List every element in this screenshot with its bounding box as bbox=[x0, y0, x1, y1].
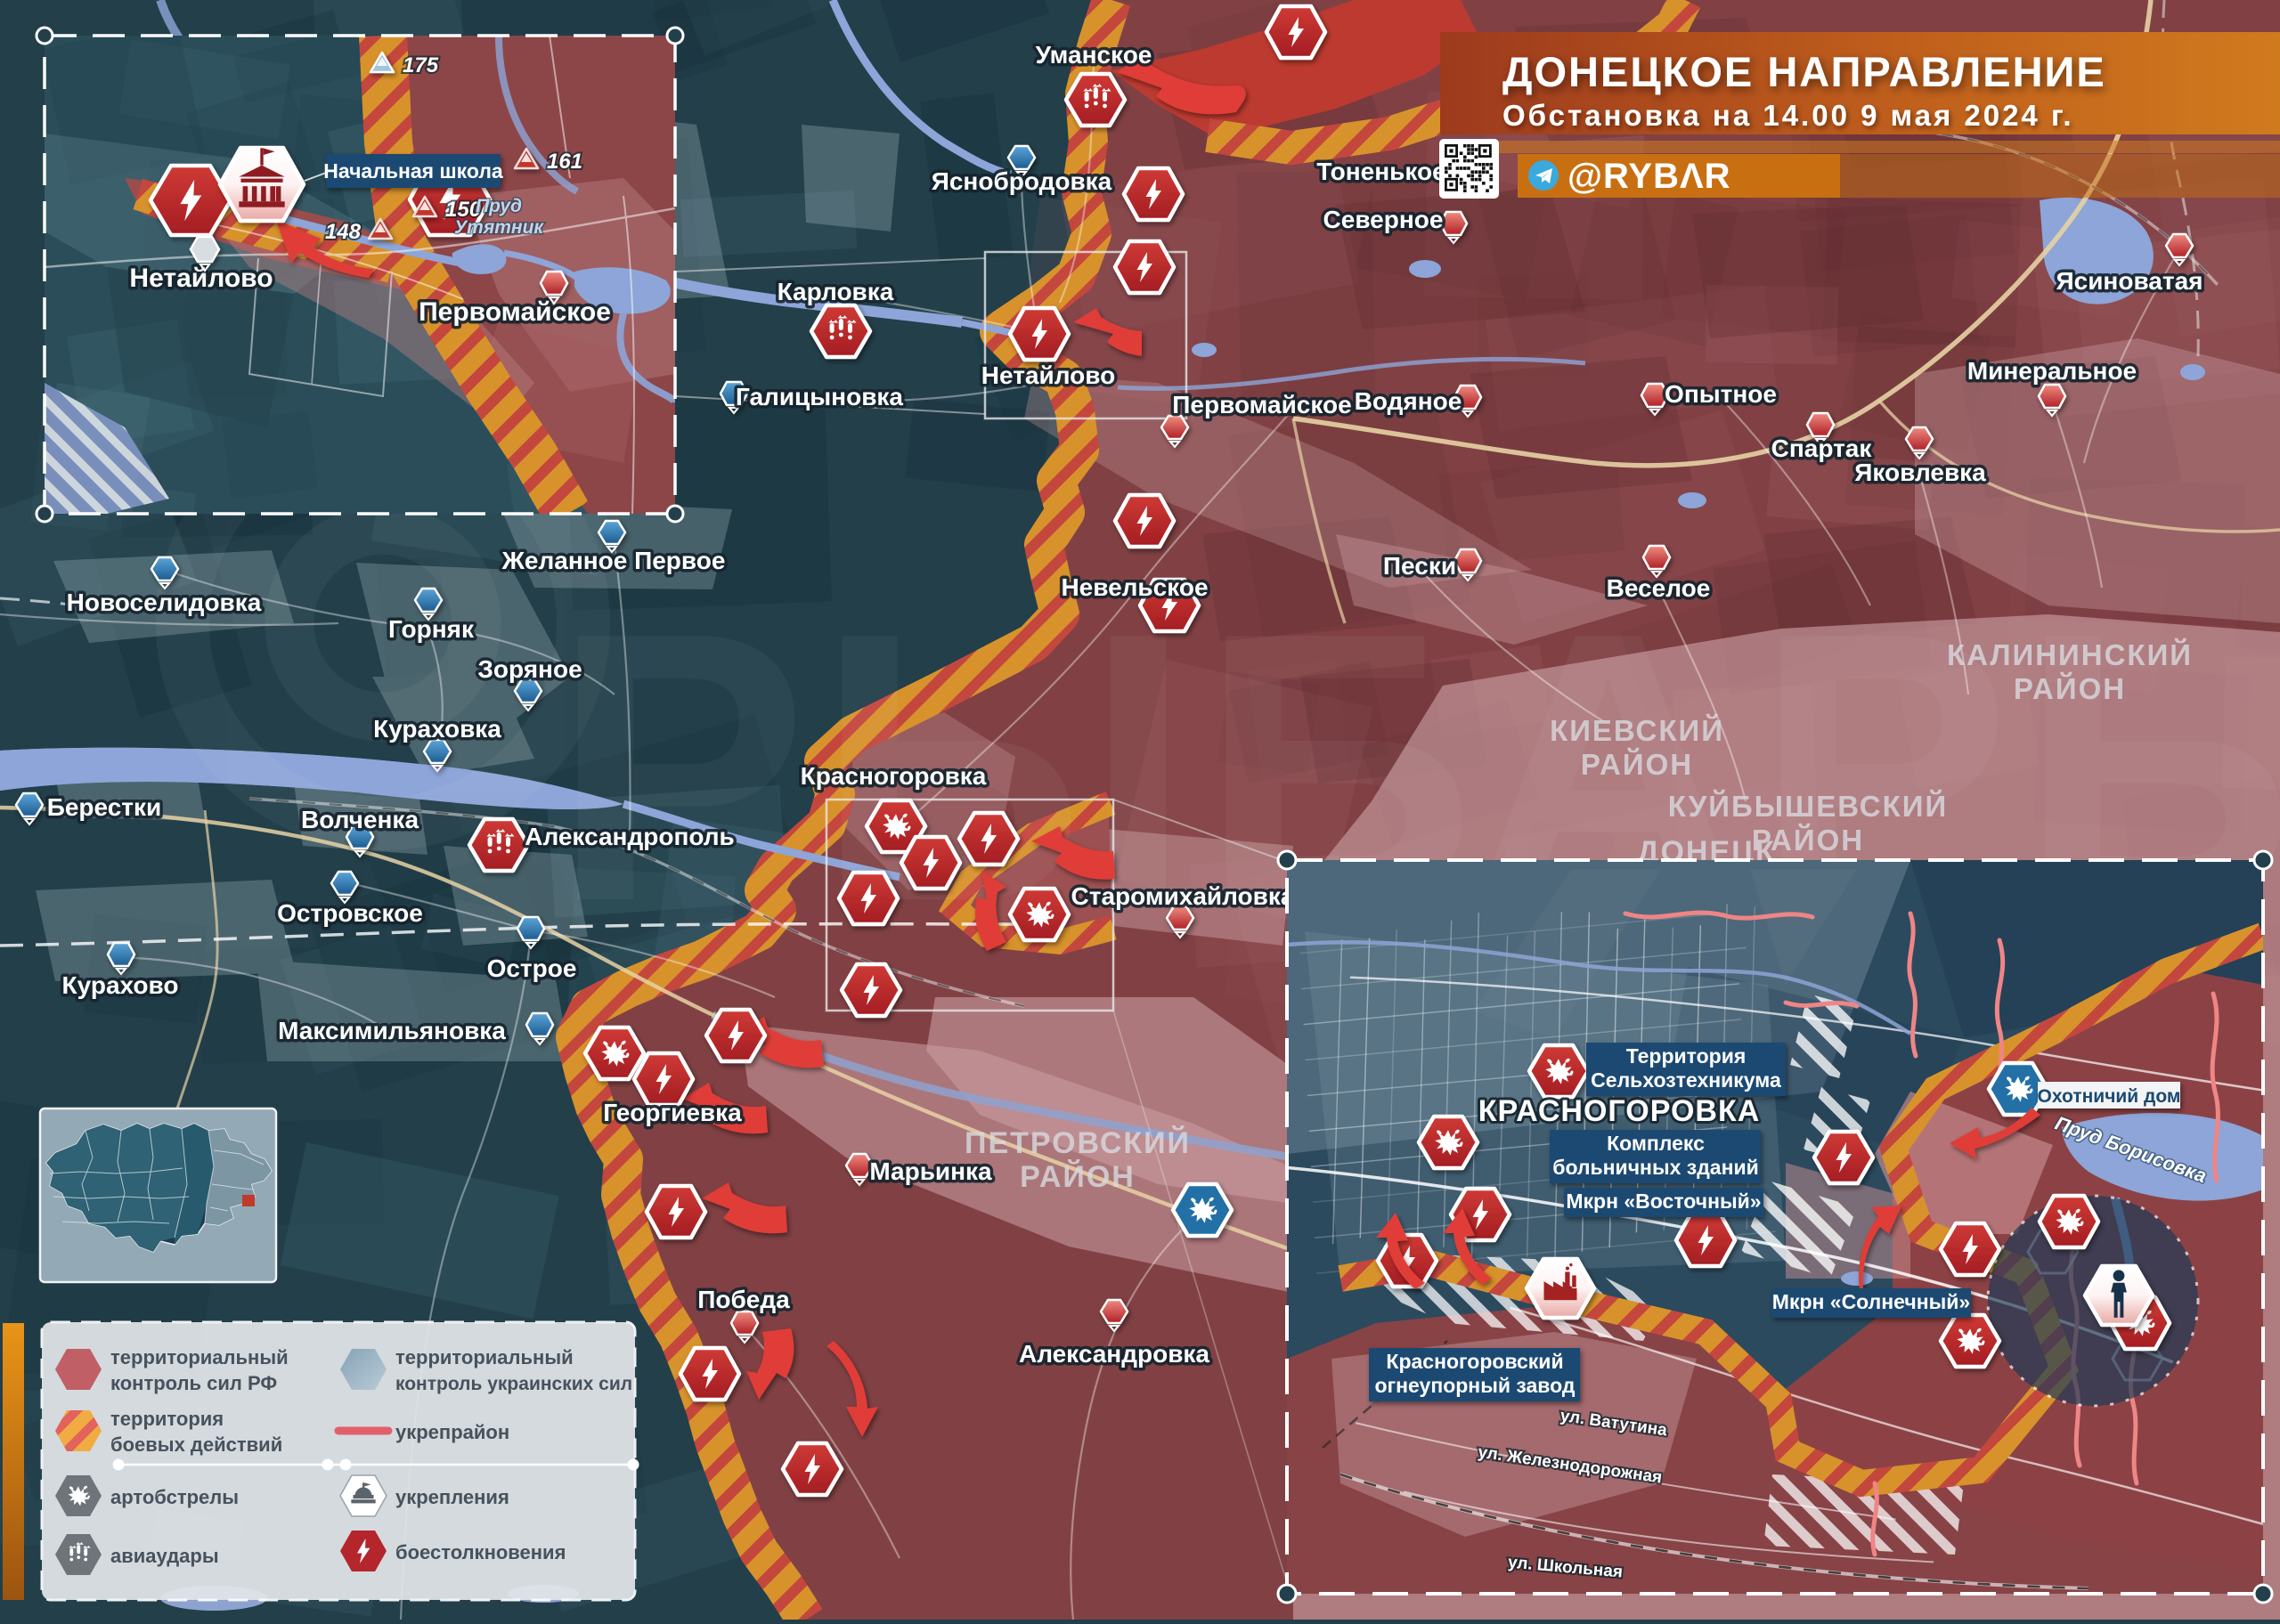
svg-text:Максимильяновка: Максимильяновка bbox=[278, 1017, 506, 1044]
svg-text:РАЙОН: РАЙОН bbox=[2014, 671, 2126, 705]
svg-text:Минеральное: Минеральное bbox=[1967, 357, 2137, 385]
svg-text:Комплекс: Комплекс bbox=[1607, 1132, 1705, 1155]
svg-text:контроль сил РФ: контроль сил РФ bbox=[110, 1372, 277, 1394]
svg-text:Мкрн «Солнечный»: Мкрн «Солнечный» bbox=[1772, 1290, 1970, 1313]
svg-text:Курахово: Курахово bbox=[62, 971, 179, 999]
svg-text:Александрополь: Александрополь bbox=[525, 823, 735, 850]
svg-text:Охотничий дом: Охотничий дом bbox=[2038, 1086, 2181, 1107]
svg-text:Островское: Островское bbox=[277, 899, 423, 927]
svg-text:Первомайское: Первомайское bbox=[419, 297, 611, 327]
svg-text:ПЕТРОВСКИЙ: ПЕТРОВСКИЙ bbox=[965, 1125, 1191, 1160]
svg-text:Александровка: Александровка bbox=[1019, 1340, 1209, 1368]
svg-text:боестолкновения: боестолкновения bbox=[395, 1541, 566, 1563]
svg-text:Зоряное: Зоряное bbox=[477, 655, 582, 683]
svg-text:Карловка: Карловка bbox=[778, 278, 894, 305]
svg-text:Галицыновка: Галицыновка bbox=[736, 383, 903, 410]
svg-text:Веселое: Веселое bbox=[1607, 574, 1711, 602]
svg-text:территориальный: территориальный bbox=[110, 1346, 289, 1368]
svg-text:Нетайлово: Нетайлово bbox=[981, 361, 1115, 389]
svg-text:Первомайское: Первомайское bbox=[1172, 391, 1351, 418]
svg-text:Волченка: Волченка bbox=[301, 806, 419, 833]
svg-text:боевых действий: боевых действий bbox=[110, 1433, 282, 1456]
svg-text:Сельхозтехникума: Сельхозтехникума bbox=[1591, 1068, 1781, 1092]
svg-text:Невельское: Невельское bbox=[1061, 573, 1208, 601]
svg-text:Обстановка на 14.00 9 мая 2024: Обстановка на 14.00 9 мая 2024 г. bbox=[1502, 99, 2074, 132]
svg-text:Утятник: Утятник bbox=[454, 217, 544, 238]
svg-text:Водяное: Водяное bbox=[1355, 387, 1462, 415]
svg-text:Уманское: Уманское bbox=[1036, 41, 1152, 69]
svg-text:Пруд: Пруд bbox=[476, 196, 522, 216]
svg-text:РАЙОН: РАЙОН bbox=[1020, 1159, 1136, 1194]
svg-text:Ясиноватая: Ясиноватая bbox=[2056, 267, 2203, 295]
svg-text:Острое: Острое bbox=[487, 954, 577, 982]
svg-text:Нетайлово: Нетайлово bbox=[129, 264, 273, 293]
svg-text:Пески: Пески bbox=[1383, 552, 1456, 580]
svg-text:Георгиевка: Георгиевка bbox=[603, 1099, 742, 1126]
svg-text:контроль украинских сил: контроль украинских сил bbox=[395, 1374, 632, 1394]
svg-text:Новоселидовка: Новоселидовка bbox=[67, 589, 262, 616]
svg-text:ДОНЕЦКОЕ НАПРАВЛЕНИЕ: ДОНЕЦКОЕ НАПРАВЛЕНИЕ bbox=[1502, 48, 2106, 95]
svg-text:175: 175 bbox=[403, 53, 439, 77]
svg-text:Яснобродовка: Яснобродовка bbox=[932, 167, 1112, 195]
svg-text:территориальный: территориальный bbox=[395, 1346, 574, 1368]
svg-text:Мкрн «Восточный»: Мкрн «Восточный» bbox=[1566, 1190, 1761, 1213]
svg-text:Желанное Первое: Желанное Первое bbox=[501, 547, 726, 574]
svg-text:РАЙОН: РАЙОН bbox=[1581, 747, 1693, 781]
svg-text:Кураховка: Кураховка bbox=[373, 715, 501, 743]
svg-text:Территория: Территория bbox=[1626, 1044, 1747, 1068]
svg-text:Опытное: Опытное bbox=[1665, 380, 1777, 408]
svg-text:Горняк: Горняк bbox=[388, 615, 475, 643]
svg-text:Победа: Победа bbox=[697, 1286, 790, 1313]
svg-text:укрепления: укрепления bbox=[395, 1486, 509, 1508]
svg-text:@RYBΛR: @RYBΛR bbox=[1567, 157, 1731, 196]
svg-text:Северное: Северное bbox=[1323, 206, 1444, 233]
svg-text:территория: территория bbox=[110, 1408, 224, 1430]
svg-text:161: 161 bbox=[547, 150, 582, 174]
svg-text:авиаудары: авиаудары bbox=[110, 1545, 219, 1567]
svg-text:больничных зданий: больничных зданий bbox=[1552, 1156, 1759, 1179]
svg-text:Марьинка: Марьинка bbox=[869, 1157, 992, 1185]
svg-text:огнеупорный завод: огнеупорный завод bbox=[1375, 1374, 1576, 1397]
svg-text:Тоненькое: Тоненькое bbox=[1316, 158, 1445, 185]
svg-text:укрепрайон: укрепрайон bbox=[395, 1421, 509, 1443]
svg-text:Старомихайловка: Старомихайловка bbox=[1071, 882, 1295, 910]
svg-text:КРАСНОГОРОВКА: КРАСНОГОРОВКА bbox=[1478, 1094, 1761, 1128]
svg-text:Яковлевка: Яковлевка bbox=[1854, 459, 1986, 486]
svg-text:КУЙБЫШЕВСКИЙ: КУЙБЫШЕВСКИЙ bbox=[1668, 789, 1948, 823]
svg-text:Красногоровка: Красногоровка bbox=[801, 762, 987, 790]
svg-text:Красногоровский: Красногоровский bbox=[1386, 1350, 1563, 1373]
svg-text:148: 148 bbox=[325, 220, 362, 244]
svg-text:КАЛИНИНСКИЙ: КАЛИНИНСКИЙ bbox=[1947, 637, 2193, 671]
svg-text:Начальная школа: Начальная школа bbox=[323, 159, 503, 183]
svg-text:Берестки: Берестки bbox=[47, 793, 162, 821]
svg-text:артобстрелы: артобстрелы bbox=[110, 1486, 239, 1508]
svg-text:КИЕВСКИЙ: КИЕВСКИЙ bbox=[1550, 713, 1724, 747]
